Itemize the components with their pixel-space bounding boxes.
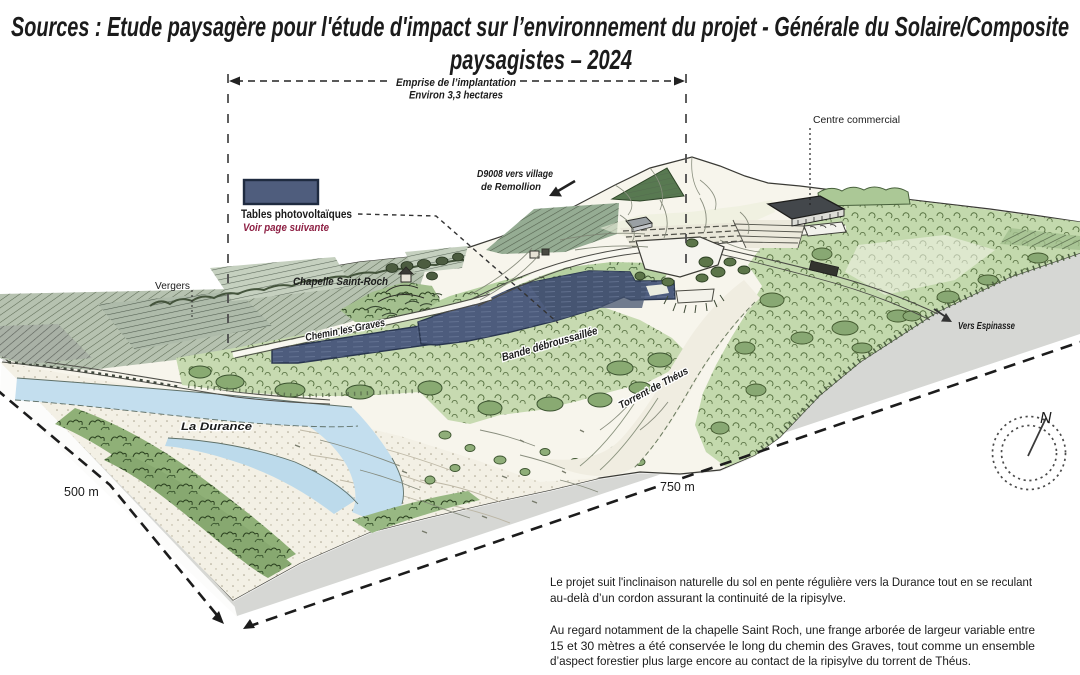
svg-text:Emprise de l’implantation: Emprise de l’implantation	[396, 77, 516, 89]
svg-text:d’aspect forestier plus large: d’aspect forestier plus large encore au …	[550, 654, 971, 668]
svg-text:Vers Espinasse: Vers Espinasse	[958, 320, 1015, 332]
svg-text:paysagistes – 2024: paysagistes – 2024	[449, 44, 632, 75]
svg-text:500 m: 500 m	[64, 485, 99, 499]
svg-text:La Durance: La Durance	[181, 421, 252, 433]
svg-text:de Remollion: de Remollion	[481, 181, 541, 193]
svg-text:Vergers: Vergers	[155, 280, 190, 292]
svg-text:Tables photovoltaïques: Tables photovoltaïques	[241, 209, 352, 221]
svg-text:D9008 vers village: D9008 vers village	[477, 168, 553, 180]
svg-text:Environ 3,3 hectares: Environ 3,3 hectares	[409, 90, 503, 102]
svg-text:Centre commercial: Centre commercial	[813, 114, 900, 126]
svg-text:Au regard notamment de la chap: Au regard notamment de la chapelle Saint…	[550, 623, 1035, 637]
svg-text:Voir page suivante: Voir page suivante	[243, 222, 329, 234]
svg-text:Le projet suit l'inclinaison n: Le projet suit l'inclinaison naturelle d…	[550, 575, 1033, 589]
svg-text:N: N	[1040, 410, 1052, 427]
svg-text:Sources : Etude paysagère pour: Sources : Etude paysagère pour l'étude d…	[11, 11, 1069, 42]
svg-text:au-delà d’un cordon assurant l: au-delà d’un cordon assurant la continui…	[550, 591, 846, 605]
svg-text:Chapelle Saint-Roch: Chapelle Saint-Roch	[293, 276, 388, 288]
svg-text:750 m: 750 m	[660, 480, 695, 494]
svg-text:15 et 30 mètres a été conservé: 15 et 30 mètres a été conservée le long …	[550, 639, 1035, 653]
